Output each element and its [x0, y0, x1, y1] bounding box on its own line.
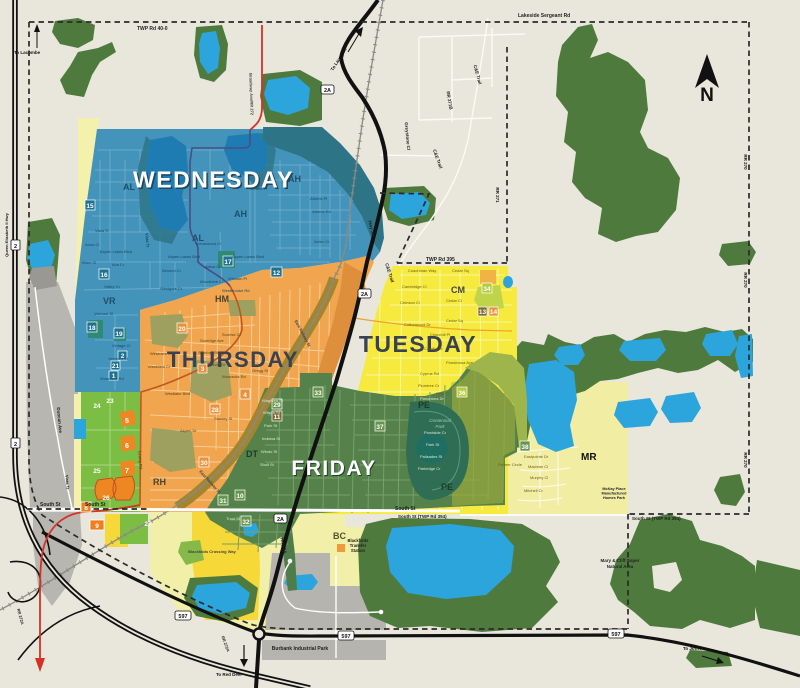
svg-text:South St (TWP Rd 394): South St (TWP Rd 394)	[398, 514, 447, 519]
svg-text:13: 13	[479, 309, 487, 316]
svg-text:Indiana St: Indiana St	[262, 436, 281, 441]
svg-text:RR 270: RR 270	[743, 272, 748, 288]
svg-text:Sunrise Cl: Sunrise Cl	[222, 332, 241, 337]
svg-text:Cottonwood Dr: Cottonwood Dr	[404, 322, 431, 327]
svg-text:Winston Pl: Winston Pl	[228, 276, 247, 281]
svg-text:9: 9	[95, 523, 99, 530]
svg-text:12: 12	[273, 270, 281, 277]
svg-text:Westview Cr: Westview Cr	[150, 351, 173, 356]
svg-text:Valmont St: Valmont St	[94, 311, 114, 316]
svg-text:Cedar Cl: Cedar Cl	[446, 298, 462, 303]
svg-text:Athens Pl: Athens Pl	[310, 196, 327, 201]
svg-text:34: 34	[483, 286, 491, 293]
svg-text:N: N	[700, 85, 714, 106]
svg-text:Aspen Dr: Aspen Dr	[180, 428, 197, 433]
svg-text:Palisades St: Palisades St	[420, 454, 443, 459]
svg-text:29: 29	[273, 402, 281, 409]
svg-text:31: 31	[219, 498, 227, 505]
svg-text:South St (TWP Rd 394): South St (TWP Rd 394)	[632, 516, 681, 521]
svg-text:30: 30	[200, 460, 208, 467]
svg-text:10: 10	[236, 493, 244, 500]
svg-text:597: 597	[611, 632, 620, 638]
svg-text:Coachman Way: Coachman Way	[408, 268, 436, 273]
svg-text:FRIDAY: FRIDAY	[291, 457, 376, 480]
svg-text:17: 17	[224, 259, 232, 266]
svg-text:25: 25	[93, 468, 101, 475]
svg-text:Vintage Cl: Vintage Cl	[112, 343, 130, 348]
svg-text:To Joffre: To Joffre	[683, 646, 702, 651]
svg-text:Pine Cl: Pine Cl	[436, 391, 449, 396]
svg-text:7: 7	[125, 468, 129, 475]
svg-text:26: 26	[102, 495, 110, 502]
svg-text:THURSDAY: THURSDAY	[167, 347, 299, 372]
svg-text:Plumtree Cr: Plumtree Cr	[418, 383, 440, 388]
svg-text:Westview Cr: Westview Cr	[148, 364, 171, 369]
svg-text:Ponderosa Ave: Ponderosa Ave	[446, 360, 474, 365]
svg-text:To Red Deer: To Red Deer	[216, 672, 242, 677]
svg-text:Mitchell Cr: Mitchell Cr	[524, 488, 544, 493]
svg-text:Trout St: Trout St	[226, 516, 241, 521]
svg-text:CM: CM	[451, 285, 465, 295]
svg-text:2: 2	[14, 442, 17, 448]
svg-text:Aspen Lakes Blvd: Aspen Lakes Blvd	[168, 254, 200, 259]
svg-text:Ava Cr: Ava Cr	[112, 262, 125, 267]
svg-text:TWP Rd 395: TWP Rd 395	[426, 257, 455, 263]
svg-text:Adina Cl: Adina Cl	[205, 264, 220, 269]
svg-text:Aspen Lakes Blvd: Aspen Lakes Blvd	[232, 254, 264, 259]
svg-text:Park: Park	[435, 424, 445, 429]
svg-text:Wilson St: Wilson St	[263, 410, 281, 415]
svg-text:Burbank Industrial Park: Burbank Industrial Park	[272, 646, 329, 652]
svg-text:Park St: Park St	[426, 442, 440, 447]
svg-text:Churchill Pl: Churchill Pl	[430, 332, 450, 337]
svg-text:32: 32	[242, 519, 250, 526]
svg-text:Westbrooke Rd: Westbrooke Rd	[222, 288, 250, 293]
svg-text:Pondside Cr: Pondside Cr	[424, 430, 447, 435]
svg-text:2A: 2A	[361, 292, 368, 298]
svg-text:36: 36	[458, 390, 466, 397]
svg-text:HM: HM	[215, 294, 229, 304]
svg-text:TWP Rd 40-0: TWP Rd 40-0	[137, 26, 168, 32]
svg-text:RH: RH	[153, 477, 166, 487]
svg-text:Maclean Cl: Maclean Cl	[528, 464, 548, 469]
svg-text:21: 21	[112, 363, 120, 370]
svg-text:2A: 2A	[277, 517, 284, 523]
svg-text:AH: AH	[234, 209, 247, 219]
svg-text:Womacks Rd: Womacks Rd	[222, 374, 246, 379]
svg-text:Homes Park: Homes Park	[603, 496, 626, 500]
svg-text:McKay Place: McKay Place	[602, 487, 625, 491]
svg-text:20: 20	[178, 326, 186, 333]
svg-text:AH: AH	[288, 174, 301, 184]
svg-text:RR 270: RR 270	[743, 452, 748, 468]
svg-text:Murphy Cl: Murphy Cl	[530, 475, 548, 480]
svg-text:2: 2	[14, 244, 17, 250]
svg-text:Manufactured: Manufactured	[602, 492, 628, 496]
svg-text:33: 33	[314, 390, 322, 397]
svg-text:Anna Cl: Anna Cl	[85, 242, 99, 247]
svg-text:Aztec Cr: Aztec Cr	[314, 239, 330, 244]
svg-text:South St: South St	[85, 502, 106, 508]
svg-text:PE: PE	[418, 400, 430, 410]
svg-text:Womacks Rd: Womacks Rd	[100, 376, 124, 381]
svg-text:South St: South St	[40, 502, 61, 508]
svg-text:Stanford Blvd: Stanford Blvd	[198, 350, 222, 355]
svg-text:RR 271: RR 271	[495, 187, 500, 203]
svg-text:3: 3	[201, 366, 205, 373]
svg-text:AL: AL	[123, 182, 135, 192]
svg-text:Crimson Cl: Crimson Cl	[400, 300, 420, 305]
svg-text:Parkridge Cr: Parkridge Cr	[418, 466, 441, 471]
svg-text:PE: PE	[441, 482, 453, 492]
svg-text:597: 597	[178, 614, 187, 620]
svg-text:28: 28	[211, 407, 219, 414]
svg-text:18: 18	[88, 325, 96, 332]
svg-text:Arrowwood Cl: Arrowwood Cl	[196, 241, 221, 246]
svg-text:Mary & Cliff Soper: Mary & Cliff Soper	[600, 558, 639, 563]
svg-text:Arlen Cl: Arlen Cl	[82, 260, 96, 265]
svg-text:Windo St: Windo St	[261, 449, 278, 454]
svg-text:19: 19	[115, 331, 123, 338]
svg-text:MR: MR	[581, 452, 597, 463]
svg-text:11: 11	[274, 414, 281, 421]
svg-text:DT: DT	[246, 449, 258, 459]
svg-text:38: 38	[521, 444, 529, 451]
svg-text:6: 6	[125, 443, 129, 450]
svg-text:597: 597	[341, 634, 350, 640]
svg-text:BC: BC	[333, 531, 346, 541]
svg-text:Westgate Cr: Westgate Cr	[160, 286, 183, 291]
svg-text:RR 270: RR 270	[743, 154, 748, 170]
svg-text:Almond Cr: Almond Cr	[162, 268, 182, 273]
svg-text:TUESDAY: TUESDAY	[359, 331, 477, 357]
svg-text:Valley Cr: Valley Cr	[104, 284, 121, 289]
svg-text:South St: South St	[395, 506, 416, 512]
svg-text:Park St: Park St	[264, 423, 278, 428]
svg-text:VR: VR	[103, 296, 116, 306]
svg-text:27: 27	[144, 521, 152, 528]
svg-text:Vista Tr: Vista Tr	[95, 228, 109, 233]
svg-text:37: 37	[376, 424, 384, 431]
svg-text:Palmer Circle: Palmer Circle	[498, 462, 523, 467]
svg-text:Vermont Cl: Vermont Cl	[108, 356, 128, 361]
svg-text:Waghorn St: Waghorn St	[262, 398, 284, 403]
svg-text:Silver Dr: Silver Dr	[210, 362, 226, 367]
svg-text:Centennial: Centennial	[429, 418, 452, 423]
svg-text:To Lacombe: To Lacombe	[14, 50, 41, 55]
svg-text:Gregg St: Gregg St	[252, 368, 269, 373]
svg-text:Leung Rd: Leung Rd	[138, 451, 144, 470]
svg-text:Station: Station	[351, 548, 366, 553]
svg-text:14: 14	[490, 309, 498, 316]
svg-text:15: 15	[86, 203, 94, 210]
svg-text:Lakeside Sergeant Rd: Lakeside Sergeant Rd	[518, 13, 570, 19]
svg-text:Aspen Lakes Blvd: Aspen Lakes Blvd	[100, 249, 132, 254]
svg-text:Natural Area: Natural Area	[607, 564, 634, 569]
svg-text:Stanley St: Stanley St	[214, 416, 233, 421]
svg-text:Athens Rd: Athens Rd	[312, 209, 331, 214]
svg-text:Queen Elizabeth II Hwy: Queen Elizabeth II Hwy	[4, 212, 9, 257]
svg-text:24: 24	[93, 403, 101, 410]
svg-text:Westlake Blvd: Westlake Blvd	[165, 391, 190, 396]
svg-text:2A: 2A	[324, 88, 331, 94]
svg-text:Blackfalds Crossing Way: Blackfalds Crossing Way	[188, 549, 236, 554]
svg-text:Cedar Sq: Cedar Sq	[452, 268, 469, 273]
svg-text:Camille Ct: Camille Ct	[424, 346, 443, 351]
svg-text:Panorama Dr: Panorama Dr	[420, 396, 444, 401]
svg-text:Cedar Sq: Cedar Sq	[446, 318, 463, 323]
svg-text:Cyprus Rd: Cyprus Rd	[420, 371, 439, 376]
svg-text:Woodbine Cl: Woodbine Cl	[200, 279, 223, 284]
svg-text:4: 4	[243, 392, 247, 399]
svg-text:23: 23	[106, 398, 114, 405]
svg-text:Eastpointe Dr: Eastpointe Dr	[524, 454, 549, 459]
svg-text:WEDNESDAY: WEDNESDAY	[133, 167, 294, 193]
svg-text:Athens Pl: Athens Pl	[250, 186, 267, 191]
svg-text:5: 5	[125, 418, 129, 425]
svg-text:Cambridge Cl: Cambridge Cl	[402, 284, 427, 289]
svg-text:Shull St: Shull St	[260, 462, 275, 467]
svg-text:Sunridge Ave: Sunridge Ave	[200, 338, 224, 343]
svg-text:16: 16	[100, 272, 108, 279]
